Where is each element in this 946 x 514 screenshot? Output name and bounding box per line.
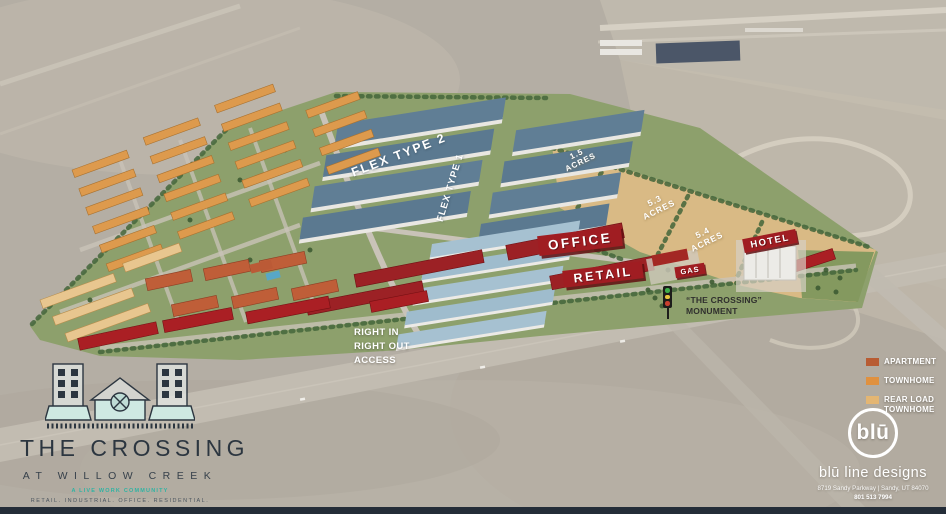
signal-post: [667, 308, 669, 319]
flex-type-2-label: FLEX TYPE 2: [349, 130, 448, 179]
access-line2: RIGHT OUT: [354, 340, 410, 354]
monument-line1: “THE CROSSING”: [686, 295, 762, 306]
parcel-acreage-label: 5.4 ACRES: [680, 219, 730, 256]
access-line3: ACCESS: [354, 354, 410, 368]
bottom-border-strip: [0, 507, 946, 514]
signal-yellow-light: [665, 295, 670, 300]
access-label: RIGHT IN RIGHT OUT ACCESS: [354, 326, 410, 367]
project-logo: THE CROSSING AT WILLOW CREEK A LIVE WORK…: [20, 362, 220, 504]
traffic-signal-housing: [663, 286, 672, 308]
flex-type-1-label: FLEX TYPE 1: [435, 152, 466, 223]
retail-banner: RETAIL: [562, 261, 643, 288]
studio-name: blū line designs: [800, 465, 946, 481]
traffic-signal-icon: [663, 286, 673, 319]
studio-address: 8719 Sandy Parkway | Sandy, UT 84070: [800, 485, 946, 492]
logo-buildings-icon: [45, 362, 195, 432]
rear-load-townhome-swatch: [866, 396, 879, 404]
monument-label: “THE CROSSING” MONUMENT: [686, 295, 762, 317]
logo-subtitle: AT WILLOW CREEK: [20, 470, 220, 482]
access-line1: RIGHT IN: [354, 326, 410, 340]
parcel-acreage-label: 5.3 ACRES: [632, 187, 682, 224]
blu-logo-icon: blū: [848, 408, 898, 458]
site-plan-rendering: FLEX TYPE 2 FLEX TYPE 1 OFFICE RETAIL GA…: [0, 0, 946, 514]
parcel-acreage-label: 1.5 ACRES: [554, 141, 603, 177]
office-banner: OFFICE: [537, 226, 623, 256]
monument-line2: MONUMENT: [686, 306, 762, 317]
legend-row-townhome: TOWNHOME: [866, 376, 944, 386]
apartment-label: APARTMENT: [884, 357, 936, 367]
gas-banner: GAS: [674, 263, 705, 279]
townhome-label: TOWNHOME: [884, 376, 935, 386]
studio-credit: blū blū line designs 8719 Sandy Parkway …: [800, 408, 946, 501]
legend-row-apartment: APARTMENT: [866, 357, 944, 367]
logo-tagline: A LIVE WORK COMMUNITY: [20, 488, 220, 494]
townhome-swatch: [866, 377, 879, 385]
logo-title: THE CROSSING: [20, 435, 220, 462]
signal-red-light: [665, 301, 670, 306]
studio-phone: 801 513 7994: [800, 494, 946, 501]
apartment-swatch: [866, 358, 879, 366]
logo-categories: RETAIL. INDUSTRIAL. OFFICE. RESIDENTIAL.: [20, 498, 220, 504]
signal-green-light: [665, 288, 670, 293]
hotel-banner: HOTEL: [742, 229, 798, 253]
